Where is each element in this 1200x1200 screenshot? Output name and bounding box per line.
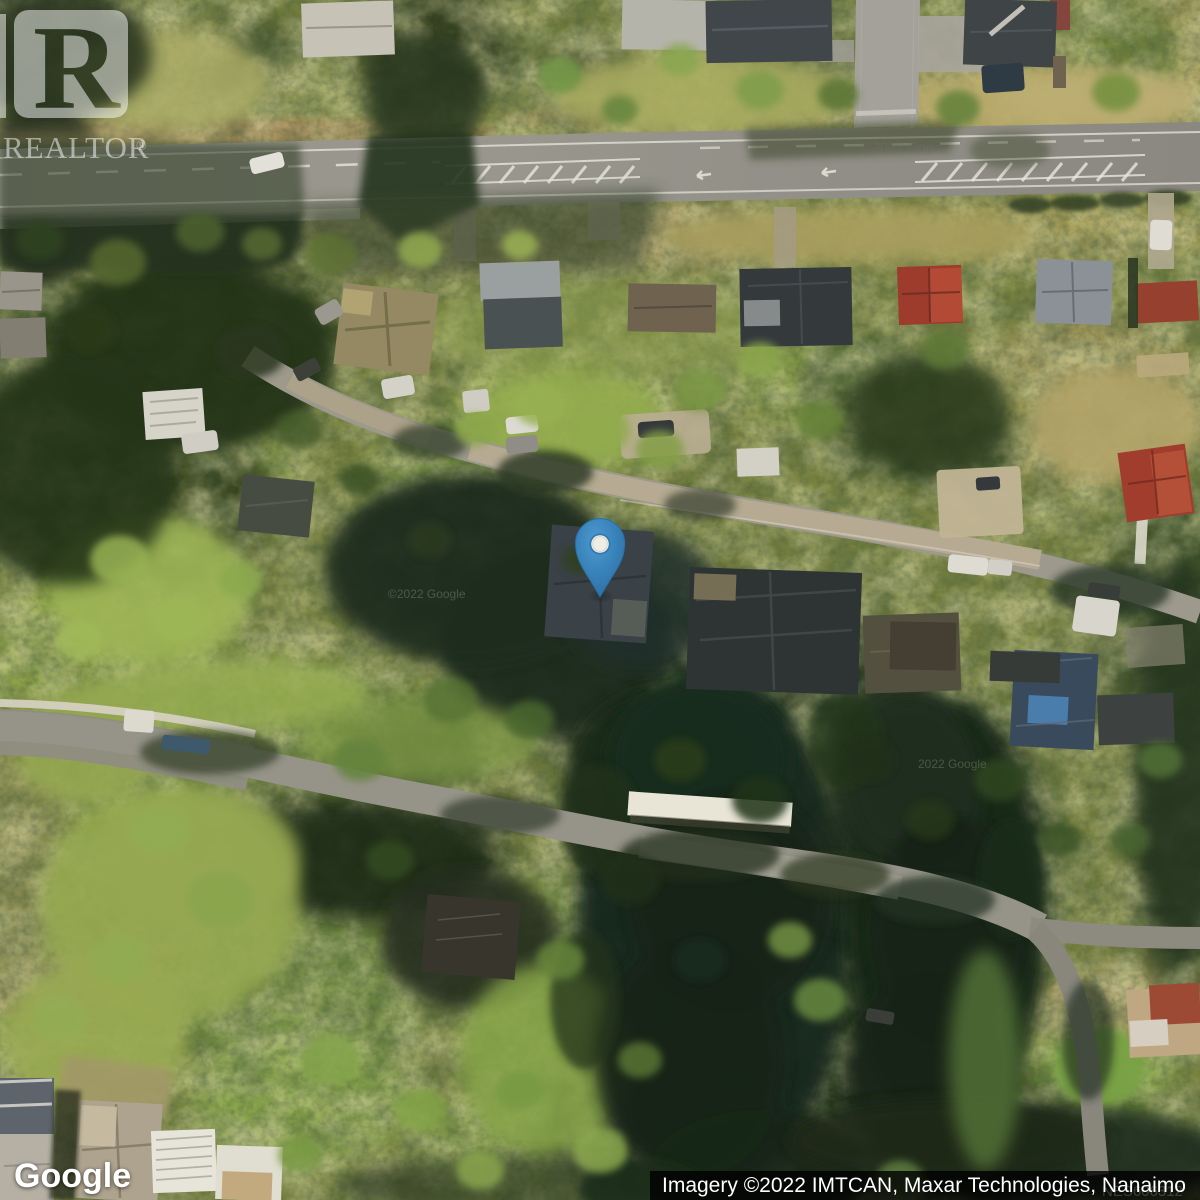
svg-text:Google: Google [14, 1157, 131, 1195]
svg-text:REALTOR: REALTOR [3, 130, 150, 165]
svg-text:©2022 Goo: ©2022 Goo [862, 139, 934, 155]
svg-text:2022 Google: 2022 Google [918, 757, 987, 771]
svg-text:®: ® [136, 139, 147, 154]
svg-text:Imagery ©2022 IMTCAN, Maxar Te: Imagery ©2022 IMTCAN, Maxar Technologies… [662, 1174, 1186, 1197]
svg-text:©2022 Google: ©2022 Google [388, 587, 466, 601]
